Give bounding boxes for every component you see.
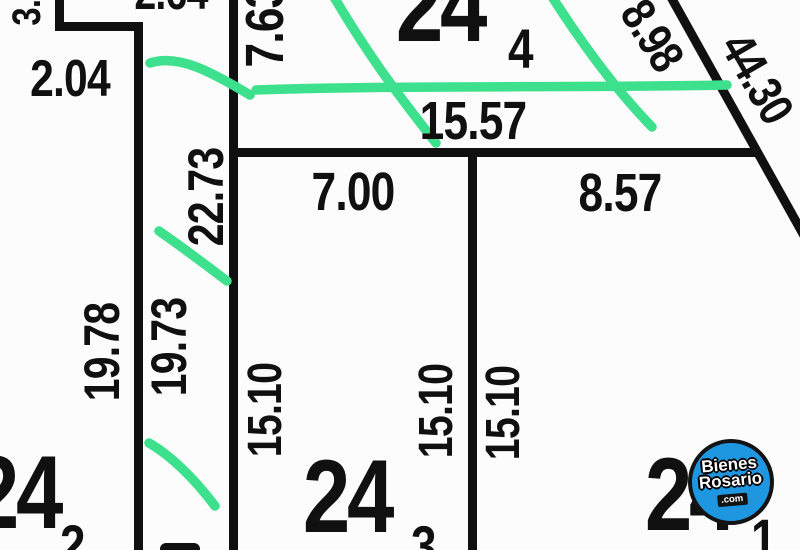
measurement-19-78: 19.78	[77, 303, 127, 402]
parcel-24-4-number: 24	[396, 0, 484, 58]
measurement-2-64: 2.64	[134, 0, 207, 18]
measurement-2-04: 2.04	[30, 53, 110, 105]
parcel-24-2-number: 24	[0, 441, 60, 545]
measurement-22-73: 22.73	[181, 148, 231, 247]
measurement-15-10-left: 15.10	[242, 363, 290, 457]
survey-plan: 3.0 2.04 2.64 7.63 15.57 7.00 8.57 22.73…	[0, 0, 800, 550]
measurement-7-63: 7.63	[238, 0, 292, 67]
parcel-24-4-subscript: 4	[508, 21, 532, 77]
measurement-15-10-right: 15.10	[480, 366, 528, 460]
measurement-3-0: 3.0	[7, 0, 47, 26]
measurement-8-57: 8.57	[579, 166, 662, 220]
parcel-24-2-subscript: 2	[60, 517, 84, 550]
measurement-15-10-middle: 15.10	[413, 364, 461, 458]
measurement-19-73: 19.73	[144, 298, 194, 397]
logo-brand-bottom: Rosario	[699, 470, 763, 492]
highlight-stroke-bottom-left	[149, 443, 215, 506]
highlight-stroke-horizontal	[256, 85, 727, 90]
bienesrosario-logo-text: Bienes Rosario .com	[697, 454, 764, 510]
bienesrosario-logo: Bienes Rosario .com	[688, 439, 774, 525]
parcel-24-3-subscript: 3	[411, 518, 435, 550]
parcel-24-3-number: 24	[303, 445, 391, 549]
logo-domain-badge: .com	[717, 493, 748, 507]
measurement-15-57: 15.57	[420, 94, 527, 148]
measurement-7-00: 7.00	[312, 165, 395, 219]
